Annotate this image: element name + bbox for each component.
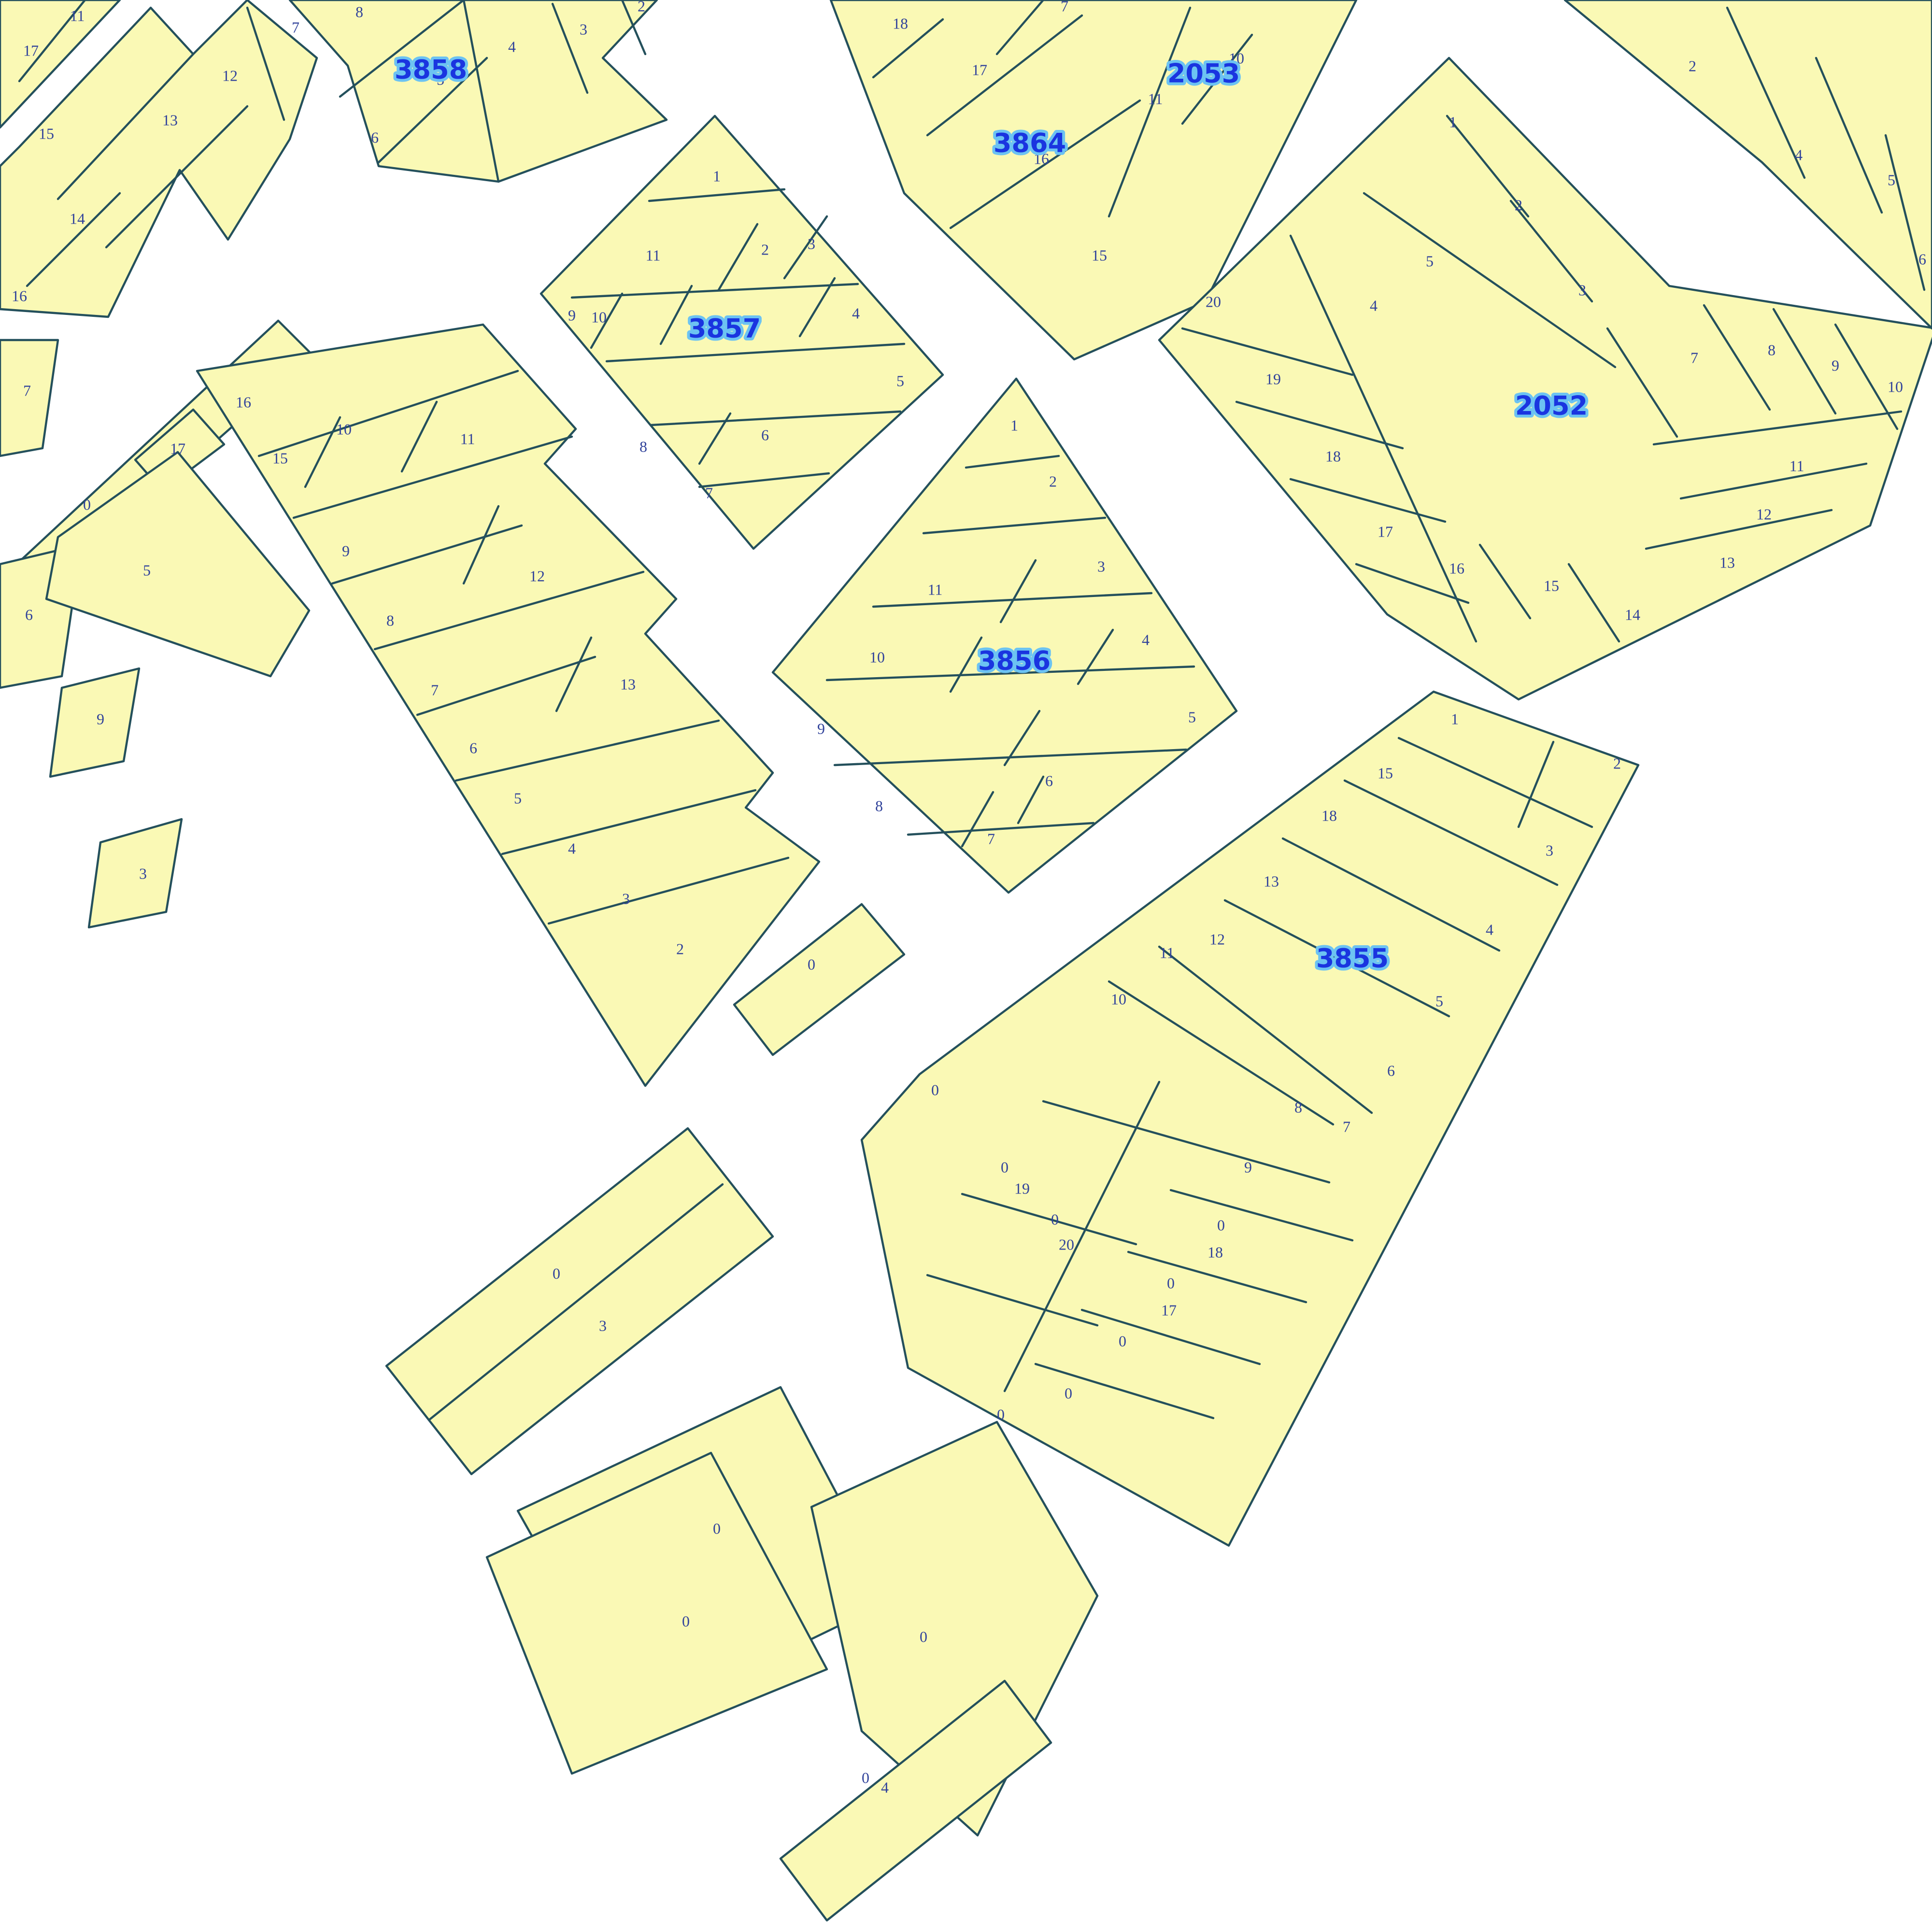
parcel-number-label: 7 [987,830,995,847]
parcel-number-label: 5 [1435,992,1443,1009]
block-number-label: 3856 [978,646,1051,676]
parcel-number-label: 3 [1578,281,1586,298]
parcel-number-label: 15 [39,125,54,142]
parcel-number-label: 19 [1014,1179,1030,1197]
parcel-number-label: 20 [1206,293,1221,310]
parcel-number-label: 0 [1217,1216,1225,1234]
parcel-number-label: 4 [1370,297,1378,314]
parcel-number-label: 11 [460,430,475,447]
parcel-number-label: 0 [713,1520,721,1537]
parcel-number-label: 6 [1387,1062,1395,1079]
block-number-label: 3858 [395,55,467,85]
parcel-number-label: 5 [896,372,904,389]
parcel-number-label: 4 [508,38,516,55]
parcel-number-label: 7 [1061,0,1068,14]
parcel-number-label: 0 [1001,1158,1009,1176]
parcel-number-label: 0 [83,496,91,513]
parcel-number-label: 3 [139,865,147,882]
parcel-number-label: 3 [622,890,630,907]
parcel-number-label: 4 [1486,921,1493,938]
parcel-number-label: 0 [1065,1384,1072,1402]
parcel-number-label: 3 [1546,841,1553,859]
block-number-label: 3864 [994,128,1066,158]
parcel-number-label: 5 [1888,171,1895,188]
parcel-number-label: 8 [1294,1098,1302,1116]
parcel-number-label: 16 [236,393,251,411]
parcel-number-label: 18 [893,14,908,32]
parcel-number-label: 1 [1010,416,1018,434]
parcel-number-label: 3 [599,1317,607,1334]
parcel-number-label: 3 [808,235,815,252]
parcel-number-label: 7 [23,382,31,399]
parcel-number-label: 10 [591,308,607,326]
parcel-number-label: 16 [12,287,27,304]
parcel-number-label: 8 [386,611,394,629]
parcel-number-label: 0 [553,1264,560,1282]
parcel-number-label: 12 [222,67,238,84]
parcel-number-label: 10 [1888,378,1903,395]
parcel-number-label: 1 [1449,113,1457,130]
parcel-number-label: 9 [97,710,104,727]
parcel-number-label: 7 [1343,1118,1350,1135]
parcel-number-label: 0 [862,1769,869,1786]
parcel-number-label: 2 [1613,754,1621,772]
parcel-number-label: 1 [1451,710,1459,727]
parcel-number-label: 18 [1321,807,1337,824]
parcel-number-label: 0 [808,955,815,973]
parcel-number-label: 0 [931,1081,939,1098]
parcel-number-label: 13 [162,111,178,128]
block-number-label: 3857 [688,313,761,344]
parcel-number-label: 6 [371,128,379,146]
parcel-number-label: 9 [817,720,825,737]
parcel-number-label: 17 [23,42,39,59]
parcel-number-label: 17 [170,440,185,457]
block-number-label: 3855 [1316,943,1389,974]
parcel-number-label: 2 [638,0,645,14]
parcel-number-label: 0 [1051,1210,1059,1228]
parcel-number-label: 13 [1719,554,1735,571]
parcel-number-label: 9 [1244,1158,1252,1176]
parcel-number-label: 13 [620,675,636,693]
parcel-number-label: 8 [639,438,647,455]
parcel-number-label: 9 [1832,356,1839,374]
parcel-number-label: 10 [336,420,352,438]
parcel-number-label: 4 [881,1778,889,1796]
parcel-number-label: 6 [469,739,477,756]
parcel-number-label: 17 [1161,1301,1177,1319]
parcel-number-label: 0 [1119,1332,1126,1350]
parcel-number-label: 10 [869,648,885,666]
parcel-number-label: 0 [1167,1274,1175,1292]
parcel-number-label: 16 [1449,559,1464,577]
parcel-number-label: 15 [272,449,288,467]
parcel-number-label: 15 [1544,577,1559,594]
parcel-number-label: 6 [25,606,33,623]
parcel-number-label: 5 [143,561,151,579]
parcel-number-label: 5 [1426,252,1434,270]
parcel-number-label: 15 [1378,764,1393,781]
parcel-number-label: 9 [568,306,576,324]
parcel-number-label: 12 [1209,930,1225,948]
parcel-number-label: 18 [1325,447,1341,465]
block-number-label: 2052 [1515,391,1588,421]
parcel-number-label: 14 [70,210,85,227]
parcel-number-label: 20 [1059,1236,1074,1253]
parcel-number-label: 11 [1148,90,1163,107]
parcel-number-label: 15 [1092,246,1107,264]
parcel-number-label: 7 [431,681,439,698]
map-canvas: 1711151312714168432567017653916151011912… [0,0,1932,1932]
parcel-number-label: 4 [852,304,860,322]
parcel-number-label: 17 [972,61,987,78]
parcel-number-label: 4 [1795,146,1803,163]
parcel-number-label: 12 [529,567,545,584]
parcel-number-label: 0 [682,1612,690,1630]
parcel-number-label: 4 [1142,631,1150,648]
parcel-number-label: 2 [1049,472,1057,490]
parcel-number-label: 11 [928,581,943,598]
parcel-number-label: 7 [1690,349,1698,366]
parcel-number-label: 2 [1515,196,1522,213]
parcel-number-label: 6 [1045,772,1053,789]
parcel-number-label: 8 [875,797,883,814]
parcel-number-label: 7 [292,18,299,36]
parcel-number-label: 11 [1790,457,1804,474]
parcel-number-label: 8 [1768,341,1776,358]
parcel-block-west-3[interactable] [89,819,182,927]
parcel-number-label: 3 [580,20,587,38]
cadastral-map[interactable]: 1711151312714168432567017653916151011912… [0,0,1932,1932]
parcel-number-label: 3 [1097,557,1105,575]
block-number-label: 2053 [1167,58,1240,89]
parcel-number-label: 6 [1918,250,1926,268]
parcel-number-label: 9 [342,542,350,559]
parcel-number-label: 12 [1756,505,1772,523]
parcel-block-west-9[interactable] [50,668,139,777]
parcel-number-label: 0 [920,1628,927,1645]
parcel-number-label: 13 [1264,872,1279,890]
parcel-number-label: 2 [676,940,684,957]
parcel-number-label: 2 [1689,57,1696,74]
parcel-number-label: 17 [1378,523,1393,540]
parcel-number-label: 11 [70,7,85,24]
parcel-number-label: 5 [514,789,522,807]
parcel-number-label: 8 [355,3,363,20]
parcel-number-label: 7 [705,484,713,501]
parcel-number-label: 4 [568,839,576,857]
parcel-number-label: 10 [1111,990,1126,1008]
parcel-number-label: 19 [1265,370,1281,387]
parcel-number-label: 2 [761,241,769,258]
parcel-number-label: 5 [1188,708,1196,725]
parcel-number-label: 11 [1160,944,1175,961]
parcel-number-label: 6 [761,426,769,443]
parcel-number-label: 18 [1207,1243,1223,1261]
parcel-number-label: 1 [713,167,721,185]
parcel-number-label: 0 [997,1406,1005,1423]
parcel-number-label: 14 [1625,606,1640,623]
parcel-number-label: 11 [646,246,661,264]
